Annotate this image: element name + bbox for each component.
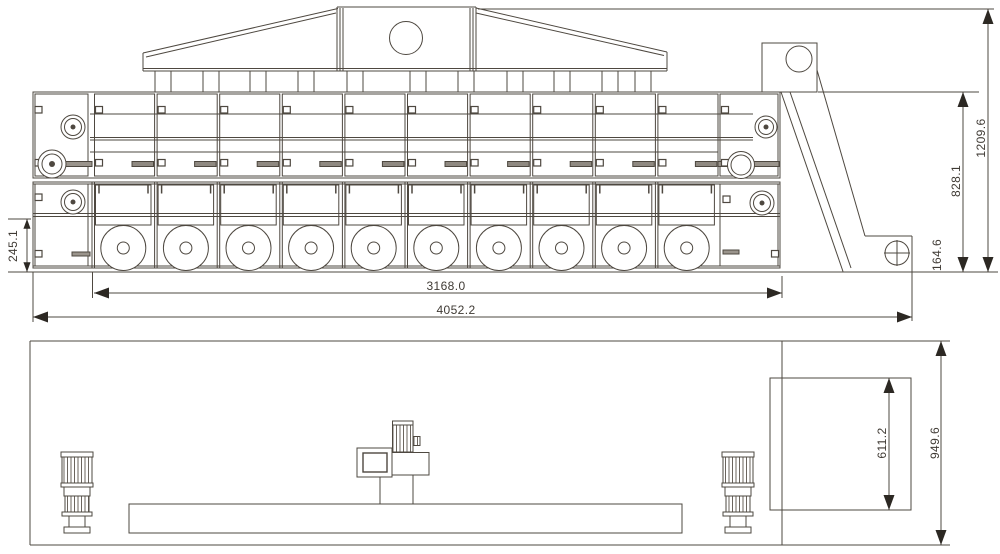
dim-label-base-height: 245.1 xyxy=(6,230,20,262)
dimension-labels: 3168.0 4052.2 245.1 164.6 828.1 1209.6 6… xyxy=(6,118,988,459)
plan-view xyxy=(30,341,950,545)
drawing-sheet: 3168.0 4052.2 245.1 164.6 828.1 1209.6 6… xyxy=(0,0,1000,554)
dryer-technical-drawing: 3168.0 4052.2 245.1 164.6 828.1 1209.6 6… xyxy=(0,0,1000,554)
dim-label-overall-width: 949.6 xyxy=(928,427,942,459)
dim-label-outlet-width: 611.2 xyxy=(875,427,889,458)
upper-deck xyxy=(33,92,780,179)
lower-deck-with-fans xyxy=(33,182,780,271)
exhaust-ducts xyxy=(155,71,651,92)
dim-label-chamber-length: 3168.0 xyxy=(426,279,465,293)
plan-outline xyxy=(30,341,950,545)
side-view xyxy=(8,7,998,323)
side-view-dimension-lines xyxy=(8,9,994,323)
discharge-elevator xyxy=(762,43,912,321)
dim-label-overall-length: 4052.2 xyxy=(436,303,475,317)
dim-label-outlet-height: 164.6 xyxy=(930,239,944,271)
roof-hood xyxy=(143,7,667,71)
dim-label-body-height: 828.1 xyxy=(949,165,963,197)
dim-label-overall-height: 1209.6 xyxy=(974,118,988,157)
